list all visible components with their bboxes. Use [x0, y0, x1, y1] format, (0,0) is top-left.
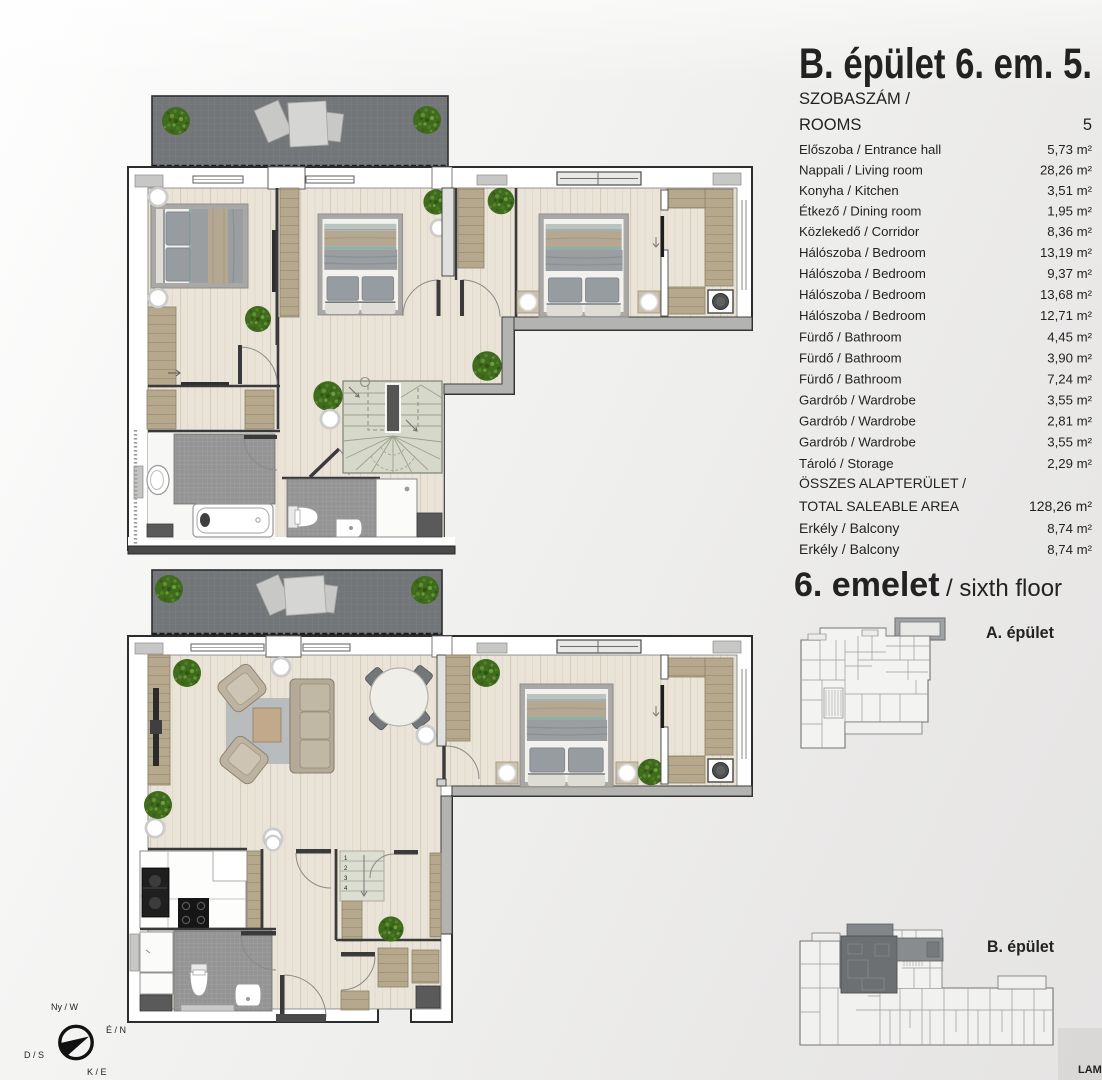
- svg-text:Konyha / Kitchen: Konyha / Kitchen: [799, 183, 899, 198]
- svg-text:8,74 m²: 8,74 m²: [1047, 521, 1092, 536]
- svg-text:Gardrób / Wardrobe: Gardrób / Wardrobe: [799, 435, 916, 450]
- svg-text:4,45 m²: 4,45 m²: [1047, 330, 1092, 345]
- svg-text:Közlekedő / Corridor: Közlekedő / Corridor: [799, 224, 920, 239]
- svg-text:5,73 m²: 5,73 m²: [1047, 142, 1092, 157]
- svg-text:2,81 m²: 2,81 m²: [1047, 414, 1092, 429]
- svg-text:ÖSSZES ALAPTERÜLET /: ÖSSZES ALAPTERÜLET /: [799, 474, 966, 491]
- svg-text:5: 5: [1083, 116, 1092, 134]
- svg-text:Előszoba / Entrance hall: Előszoba / Entrance hall: [799, 142, 941, 157]
- svg-text:Hálószoba / Bedroom: Hálószoba / Bedroom: [799, 245, 926, 260]
- svg-text:Nappali / Living room: Nappali / Living room: [799, 163, 923, 178]
- svg-text:Étkező / Dining room: Étkező / Dining room: [799, 204, 921, 219]
- svg-text:B. épület: B. épület: [987, 937, 1054, 956]
- svg-text:Fürdő / Bathroom: Fürdő / Bathroom: [799, 372, 902, 387]
- svg-text:128,26 m²: 128,26 m²: [1029, 498, 1092, 514]
- svg-text:13,19 m²: 13,19 m²: [1040, 245, 1093, 260]
- svg-text:Hálószoba / Bedroom: Hálószoba / Bedroom: [799, 266, 926, 281]
- svg-text:13,68 m²: 13,68 m²: [1040, 287, 1093, 302]
- svg-text:Erkély / Balcony: Erkély / Balcony: [799, 520, 899, 536]
- svg-text:K / E: K / E: [87, 1067, 107, 1077]
- svg-text:TOTAL SALEABLE AREA: TOTAL SALEABLE AREA: [799, 498, 960, 514]
- svg-text:8,74 m²: 8,74 m²: [1047, 542, 1092, 557]
- svg-text:Hálószoba / Bedroom: Hálószoba / Bedroom: [799, 287, 926, 302]
- svg-text:/ sixth floor: / sixth floor: [946, 575, 1062, 602]
- svg-text:Gardrób / Wardrobe: Gardrób / Wardrobe: [799, 393, 916, 408]
- svg-text:1,95 m²: 1,95 m²: [1047, 204, 1092, 219]
- svg-text:B. épület 6. em. 5.: B. épület 6. em. 5.: [799, 40, 1092, 88]
- svg-text:28,26 m²: 28,26 m²: [1040, 163, 1093, 178]
- svg-text:LAM R: LAM R: [1078, 1064, 1102, 1076]
- svg-text:A. épület: A. épület: [986, 623, 1054, 642]
- svg-text:Tároló / Storage: Tároló / Storage: [799, 456, 894, 471]
- svg-text:3,55 m²: 3,55 m²: [1047, 393, 1092, 408]
- svg-text:Hálószoba / Bedroom: Hálószoba / Bedroom: [799, 308, 926, 323]
- svg-text:Ny / W: Ny / W: [51, 1002, 79, 1012]
- svg-text:3,90 m²: 3,90 m²: [1047, 351, 1092, 366]
- svg-text:7,24 m²: 7,24 m²: [1047, 372, 1092, 387]
- svg-text:Gardrób / Wardrobe: Gardrób / Wardrobe: [799, 414, 916, 429]
- svg-text:Fürdő / Bathroom: Fürdő / Bathroom: [799, 330, 902, 345]
- svg-text:6. emelet: 6. emelet: [794, 566, 940, 604]
- svg-text:8,36 m²: 8,36 m²: [1047, 224, 1092, 239]
- svg-text:Fürdő / Bathroom: Fürdő / Bathroom: [799, 351, 902, 366]
- svg-text:D / S: D / S: [24, 1050, 44, 1060]
- svg-text:É / N: É / N: [106, 1025, 126, 1035]
- svg-text:Erkély / Balcony: Erkély / Balcony: [799, 541, 899, 557]
- svg-text:ROOMS: ROOMS: [799, 116, 861, 134]
- svg-text:12,71 m²: 12,71 m²: [1040, 308, 1093, 323]
- svg-text:3,55 m²: 3,55 m²: [1047, 435, 1092, 450]
- svg-text:9,37 m²: 9,37 m²: [1047, 266, 1092, 281]
- svg-text:2,29 m²: 2,29 m²: [1047, 456, 1092, 471]
- svg-text:3,51 m²: 3,51 m²: [1047, 183, 1092, 198]
- svg-text:SZOBASZÁM /: SZOBASZÁM /: [799, 89, 910, 108]
